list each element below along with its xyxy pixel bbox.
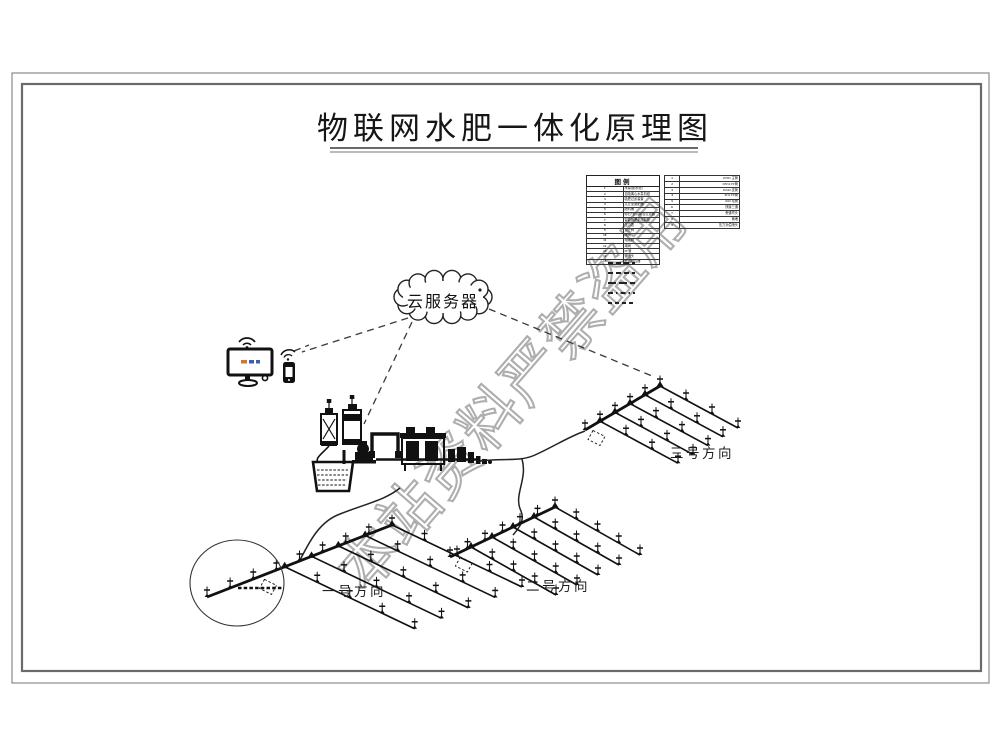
mobile-wifi-icon <box>281 350 295 383</box>
drawing-sheet: 本站资料严禁盗用 <box>0 0 1000 750</box>
field-label-2: 二号方向 <box>526 575 606 595</box>
legend-row: 9 压力补偿喷头 <box>665 223 740 229</box>
cloud-server-label: 云服务器 <box>405 288 481 312</box>
legend-title: 图例 <box>587 176 660 187</box>
legend-line-samples <box>608 263 635 303</box>
wireless-links <box>294 309 652 424</box>
field-label-1: 一号方向 <box>322 580 402 600</box>
legend-table-secondary: 1 DN65 主管 2 DN50 PE管 3 DN40 支管 4 Φ32 PE管… <box>664 175 740 229</box>
field-grid-1 <box>204 515 525 629</box>
title-underline <box>330 148 698 152</box>
page-title: 物联网水肥一体化原理图 <box>285 103 745 148</box>
legend-row: 15 无线阀控器 <box>587 259 660 264</box>
detail-callout-circle <box>190 540 284 626</box>
field-label-3: 三号方向 <box>670 442 750 462</box>
sheet-border <box>12 73 989 683</box>
fertigation-station <box>313 395 492 491</box>
legend-table-main: 图例 1 水源(蓄水池) 2 自吸离心水泵机组 3 吸肥过滤装置 4 文丘里施肥… <box>586 175 660 265</box>
monitor-wifi-icon <box>228 338 272 386</box>
